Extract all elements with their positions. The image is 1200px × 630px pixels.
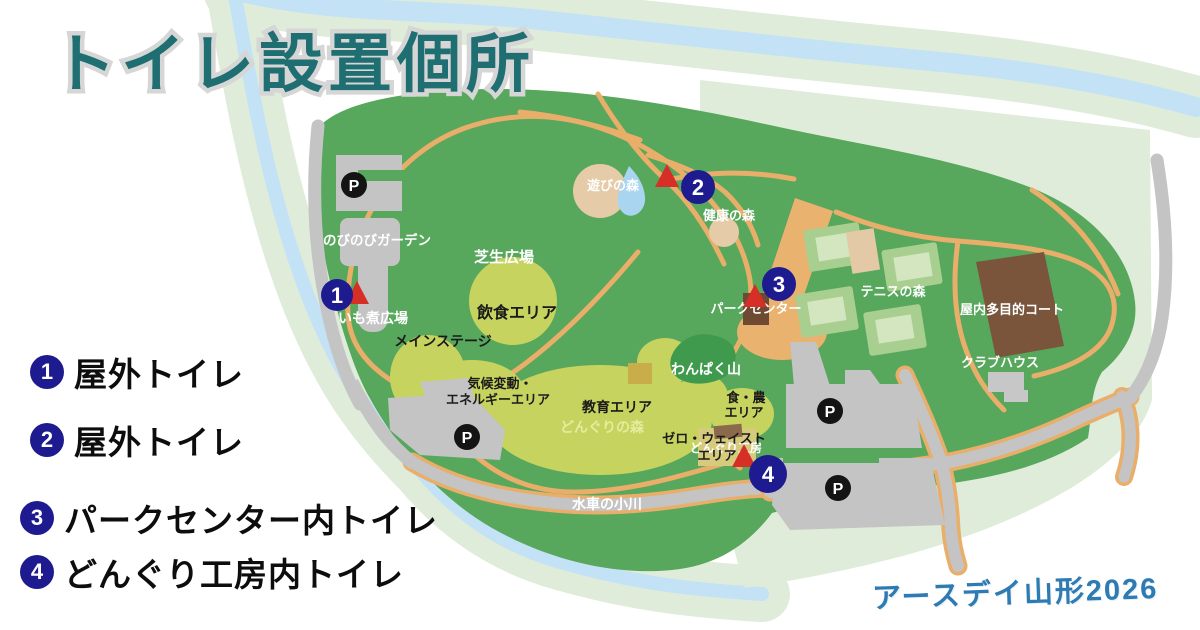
page-title: トイレ設置個所 トイレ設置個所: [52, 26, 572, 126]
label-kiko-hendo-line1: 気候変動・: [467, 376, 532, 391]
legend-item-4: 4 どんぐり工房内トイレ: [20, 548, 404, 596]
page-title-text: トイレ設置個所: [52, 26, 535, 103]
legend-badge-4: 4: [20, 555, 54, 589]
marker-number: 4: [762, 462, 775, 487]
legend-item-3: 3 パークセンター内トイレ: [20, 494, 438, 542]
label-kyoiku-area: 教育エリア: [582, 399, 652, 415]
marker-number: 3: [773, 272, 785, 297]
parking-p-label: P: [825, 404, 836, 421]
legend-badge-3: 3: [20, 501, 54, 535]
label-shibafu-hiroba: 芝生広場: [474, 248, 534, 266]
legend-item-1: 1 屋外トイレ: [30, 348, 244, 396]
label-club-house: クラブハウス: [961, 355, 1039, 370]
label-wanpaku-yama: わんぱく山: [671, 361, 741, 377]
legend-item-2: 2 屋外トイレ: [30, 416, 244, 464]
label-kenko-no-mori: 健康の森: [703, 208, 756, 223]
label-kiko-hendo-line2: エネルギーエリア: [446, 392, 550, 407]
legend-label-2: 屋外トイレ: [74, 416, 244, 464]
legend-badge-1: 1: [30, 355, 64, 389]
legend-label-1: 屋外トイレ: [74, 348, 244, 396]
label-shoku-no-line1: 食・農: [726, 390, 766, 405]
label-main-stage: メインステージ: [394, 333, 491, 349]
label-zero-waste-line1: ゼロ・ウェイスト: [662, 431, 766, 446]
legend-label-3: パークセンター内トイレ: [64, 494, 438, 542]
marker-number: 1: [331, 283, 343, 308]
parking-icon: P: [341, 172, 367, 198]
parking-p-label: P: [833, 481, 844, 498]
parking-icon: P: [454, 424, 480, 450]
label-shoku-no-line2: エリア: [724, 405, 763, 420]
label-indoor-court: 屋内多目的コート: [960, 302, 1064, 317]
parking-icon: P: [817, 398, 843, 424]
label-nobinobi-garden: のびのびガーデン: [323, 232, 431, 248]
label-tennis-no-mori: テニスの森: [860, 284, 926, 299]
label-suisha-no-ogawa: 水車の小川: [572, 496, 642, 512]
kyoiku-building: [628, 363, 652, 384]
label-donguri-no-mori: どんぐりの森: [560, 419, 645, 435]
label-imoni-hiroba: いも煮広場: [338, 310, 408, 326]
label-asobi-no-mori: 遊びの森: [587, 178, 640, 193]
parking-p-label: P: [462, 430, 473, 447]
legend-label-4: どんぐり工房内トイレ: [64, 548, 404, 596]
marker-number: 2: [692, 175, 704, 200]
label-zero-waste-line2: エリア: [697, 448, 736, 463]
parking-p-label: P: [349, 178, 360, 195]
label-inshoku-area: 飲食エリア: [476, 303, 557, 322]
legend-badge-2: 2: [30, 423, 64, 457]
parking-icon: P: [825, 475, 851, 501]
